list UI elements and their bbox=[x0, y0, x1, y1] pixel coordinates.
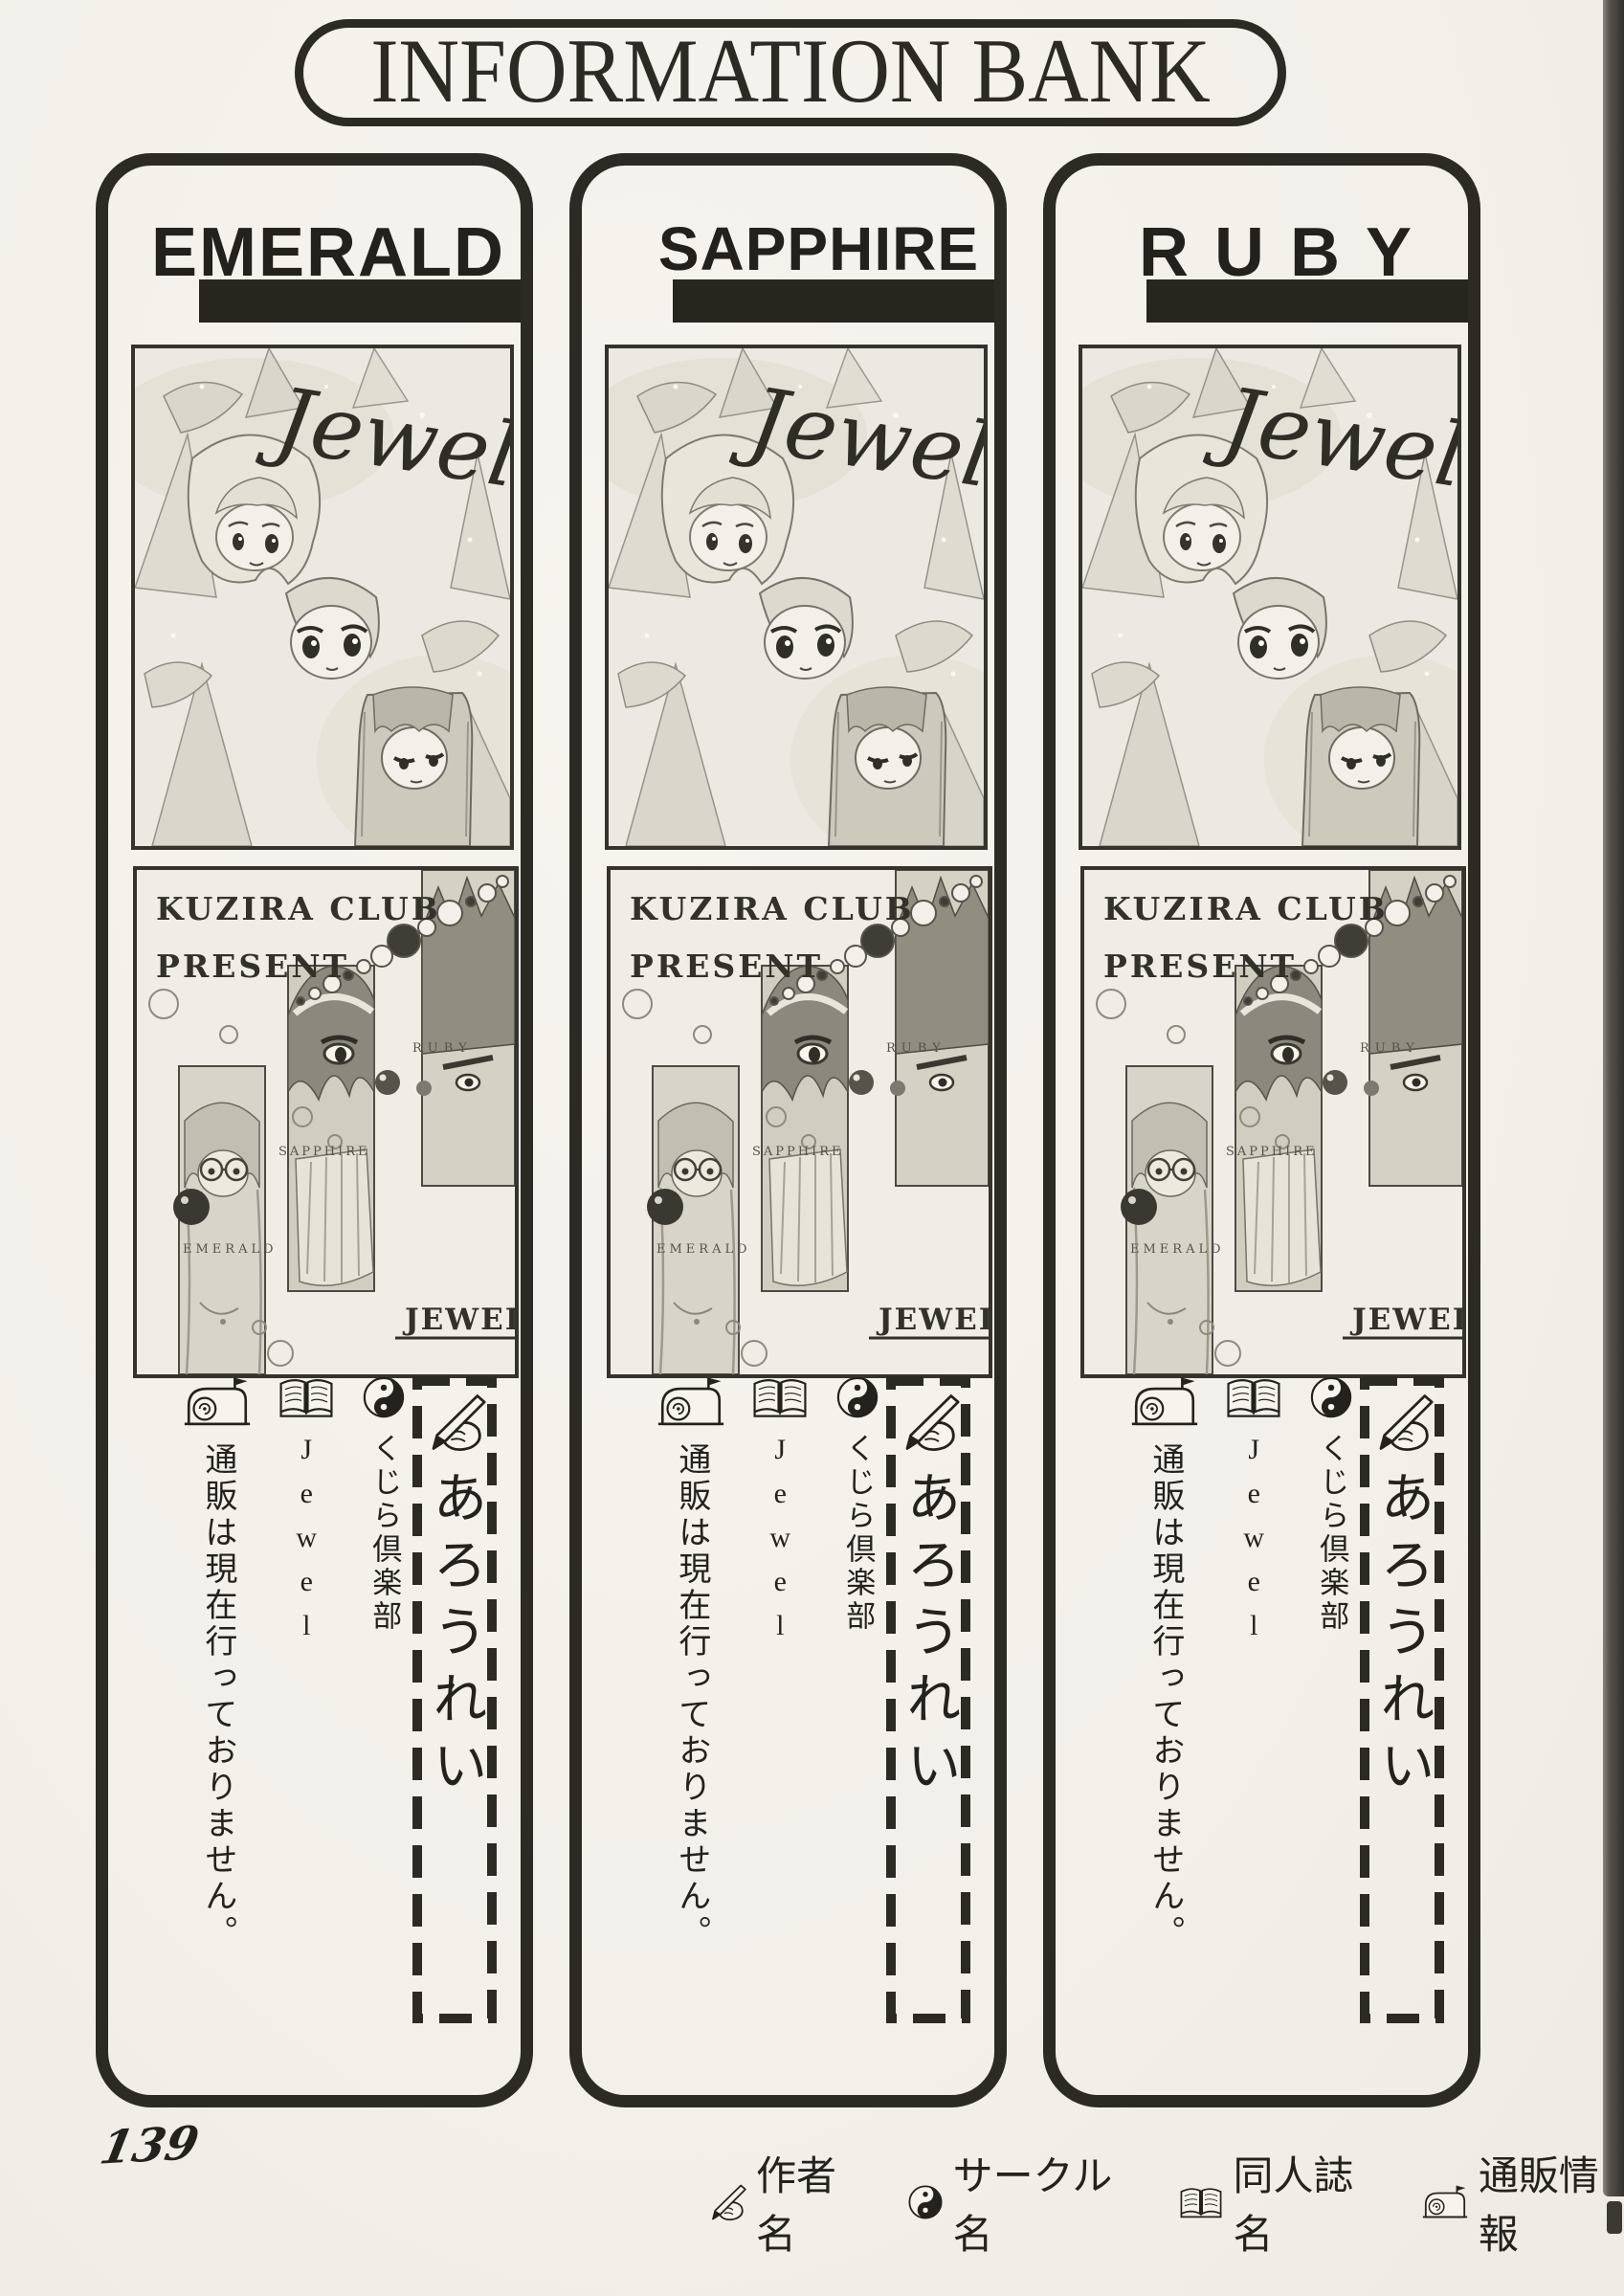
title-underline-bar bbox=[1146, 279, 1468, 323]
circle-name-column: くじら倶楽部 bbox=[1297, 1375, 1366, 1634]
cover-art-jewel bbox=[605, 345, 988, 850]
catalog-card: EMERALD 通販は現在行っておりません。 bbox=[96, 153, 533, 2107]
mailorder-text: 通販は現在行っておりません。 bbox=[1147, 1442, 1182, 1951]
writing-hand-icon bbox=[706, 2182, 746, 2222]
catalog-page: Jewel bbox=[0, 0, 1624, 2296]
legend-circle: サークル名 bbox=[907, 2144, 1136, 2261]
entry-details: 通販は現在行っておりません。 Jewel くじら倶楽部 bbox=[1056, 1375, 1468, 2057]
cover-art-kuzira-club bbox=[1080, 866, 1466, 1378]
mailorder-column: 通販は現在行っておりません。 bbox=[639, 1375, 743, 1951]
circle-name-column: くじら倶楽部 bbox=[823, 1375, 892, 1634]
circle-name-text: くじら倶楽部 bbox=[842, 1433, 874, 1634]
mailorder-text: 通販は現在行っておりません。 bbox=[200, 1442, 234, 1951]
card-title: SAPPHIRE bbox=[658, 218, 979, 279]
page-title: INFORMATION BANK bbox=[370, 27, 1211, 118]
dashed-frame bbox=[412, 1375, 498, 2024]
page-title-banner: INFORMATION BANK bbox=[295, 19, 1286, 126]
mailbox-icon bbox=[656, 1375, 726, 1429]
yinyang-icon bbox=[907, 2184, 944, 2220]
dashed-frame bbox=[885, 1375, 971, 2024]
entry-details: 通販は現在行っておりません。 Jewel くじら倶楽部 bbox=[108, 1375, 521, 2057]
yinyang-icon bbox=[1309, 1375, 1353, 1419]
scan-blob-artifact bbox=[1607, 2201, 1622, 2234]
cover-art-kuzira-club bbox=[607, 866, 992, 1378]
open-book-icon bbox=[750, 1375, 810, 1420]
legend-book: 同人誌名 bbox=[1178, 2144, 1379, 2261]
open-book-icon bbox=[1178, 2185, 1224, 2220]
card-title: RUBY bbox=[1139, 218, 1437, 287]
book-title-column: Jewel bbox=[269, 1375, 344, 1654]
cover-art-jewel bbox=[1079, 345, 1461, 850]
author-name-box: あろうれい bbox=[885, 1375, 971, 2024]
mailorder-text: 通販は現在行っておりません。 bbox=[674, 1442, 708, 1951]
legend: 作者名 サークル名 同人誌名 通販情報 bbox=[706, 2144, 1624, 2261]
book-title-column: Jewel bbox=[743, 1375, 817, 1654]
book-title-text: Jewel bbox=[291, 1434, 322, 1654]
mailbox-icon bbox=[1129, 1375, 1200, 1429]
book-title-text: Jewel bbox=[765, 1434, 795, 1654]
title-underline-bar bbox=[199, 279, 521, 323]
book-title-text: Jewel bbox=[1238, 1434, 1269, 1654]
open-book-icon bbox=[1224, 1375, 1283, 1420]
title-underline-bar bbox=[673, 279, 994, 323]
yinyang-icon bbox=[835, 1375, 879, 1419]
legend-author-label: 作者名 bbox=[756, 2144, 865, 2261]
card-title: EMERALD bbox=[151, 218, 505, 287]
author-name-box: あろうれい bbox=[412, 1375, 498, 2024]
dashed-frame bbox=[1359, 1375, 1445, 2024]
mailorder-column: 通販は現在行っておりません。 bbox=[166, 1375, 269, 1951]
book-title-column: Jewel bbox=[1216, 1375, 1291, 1654]
cover-art-jewel bbox=[131, 345, 514, 850]
cover-art-kuzira-club bbox=[133, 866, 519, 1378]
mailorder-column: 通販は現在行っておりません。 bbox=[1113, 1375, 1216, 1951]
mailbox-icon bbox=[182, 1375, 253, 1429]
circle-name-column: くじら倶楽部 bbox=[349, 1375, 418, 1634]
page-number: 139 bbox=[96, 2116, 203, 2174]
legend-book-label: 同人誌名 bbox=[1234, 2144, 1379, 2261]
catalog-columns: EMERALD 通販は現在行っておりません。 bbox=[96, 153, 1480, 2107]
author-name-box: あろうれい bbox=[1359, 1375, 1445, 2024]
legend-mailorder: 通販情報 bbox=[1421, 2144, 1624, 2261]
circle-name-text: くじら倶楽部 bbox=[1316, 1433, 1347, 1634]
circle-name-text: くじら倶楽部 bbox=[368, 1433, 400, 1634]
scan-edge-artifact bbox=[1603, 0, 1624, 2196]
catalog-card: RUBY 通販は現在行っておりません。 J bbox=[1043, 153, 1480, 2107]
open-book-icon bbox=[277, 1375, 336, 1420]
yinyang-icon bbox=[362, 1375, 406, 1419]
legend-circle-label: サークル名 bbox=[953, 2144, 1136, 2261]
mailbox-icon bbox=[1421, 2184, 1469, 2220]
entry-details: 通販は現在行っておりません。 Jewel くじら倶楽部 bbox=[582, 1375, 994, 2057]
legend-author: 作者名 bbox=[706, 2144, 865, 2261]
catalog-card: SAPPHIRE 通販は現在行っておりません。 bbox=[569, 153, 1007, 2107]
